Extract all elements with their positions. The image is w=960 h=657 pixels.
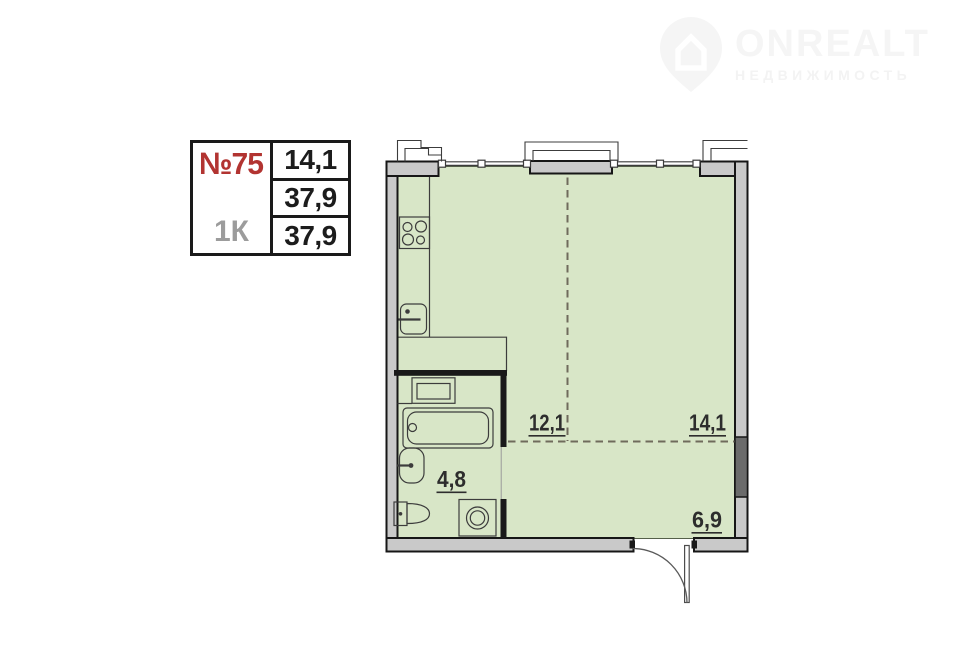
wall-top-left	[387, 162, 439, 177]
door-swing-arc	[633, 549, 687, 604]
door-jamb-right	[692, 541, 698, 549]
label-bathroom: 4,8	[437, 466, 466, 492]
label-kitchen-zone: 12,1	[529, 410, 565, 436]
vent-shaft	[735, 437, 748, 497]
floor-plan: 12,1 14,1 4,8 6,9	[0, 0, 960, 657]
door-jamb-left	[630, 541, 636, 549]
window-sill	[530, 161, 612, 174]
label-hallway: 6,9	[692, 507, 722, 533]
label-living-zone: 14,1	[689, 410, 726, 436]
entrance-door	[630, 541, 698, 604]
balcony-outlines	[398, 141, 748, 162]
wall-bottom-left	[387, 538, 634, 552]
wall-left	[387, 162, 398, 552]
wall-bottom-right	[694, 538, 748, 552]
page: ONREALT НЕДВИЖИМОСТЬ №75 1К 14,1 37,9 37…	[0, 0, 960, 657]
